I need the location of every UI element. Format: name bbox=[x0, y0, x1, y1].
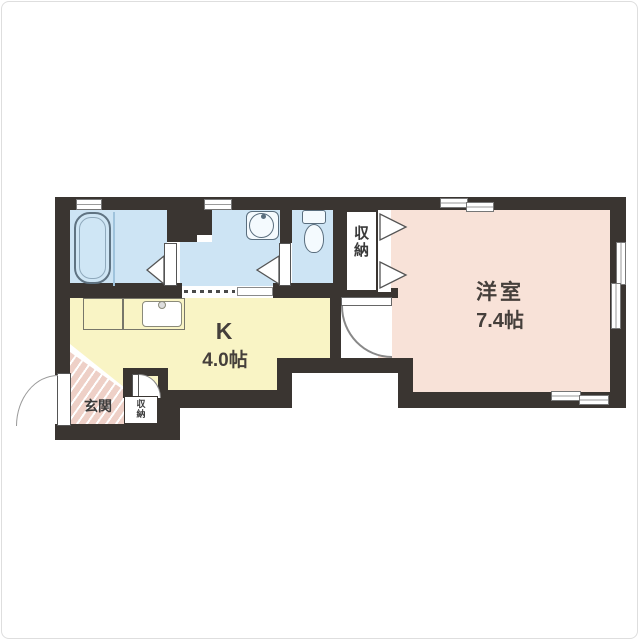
kitchen-size: 4.0帖 bbox=[180, 345, 270, 372]
bathroom-door-triangle bbox=[147, 256, 164, 284]
toilet-door-triangle bbox=[257, 256, 279, 284]
closet-folding-door-lower bbox=[380, 262, 406, 288]
closet-folding-door-upper bbox=[380, 214, 406, 240]
floorplan-canvas: 洋室 7.4帖 K 4.0帖 収納 玄関 収納 bbox=[0, 0, 639, 640]
kitchen-label: K bbox=[204, 318, 244, 345]
western-room-label: 洋室 bbox=[440, 276, 560, 306]
entrance-label: 玄関 bbox=[72, 396, 124, 416]
western-room-size: 7.4帖 bbox=[440, 304, 560, 333]
closet-label: 収納 bbox=[353, 226, 370, 260]
entrance-closet-label: 収納 bbox=[136, 399, 146, 419]
